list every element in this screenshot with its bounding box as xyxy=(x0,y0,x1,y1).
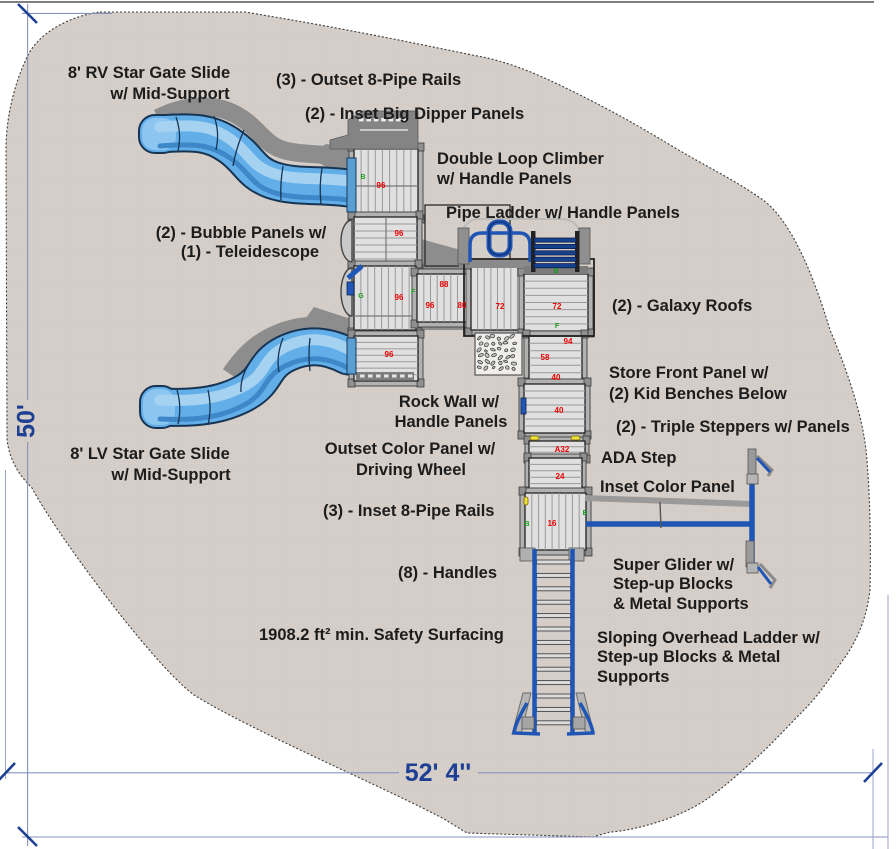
svg-text:1908.2 ft² min. Safety Surfaci: 1908.2 ft² min. Safety Surfacing xyxy=(259,626,504,644)
svg-text:w/ Mid-Support: w/ Mid-Support xyxy=(110,466,231,484)
svg-text:ADA Step: ADA Step xyxy=(601,449,676,467)
svg-text:Outset Color Panel w/: Outset Color Panel w/ xyxy=(325,440,496,458)
svg-text:Handle Panels: Handle Panels xyxy=(395,413,508,431)
svg-text:Rock Wall w/: Rock Wall w/ xyxy=(399,393,500,411)
svg-text:96: 96 xyxy=(395,293,404,302)
svg-text:A32: A32 xyxy=(555,445,570,454)
svg-text:24: 24 xyxy=(556,472,565,481)
svg-text:Store Front Panel w/: Store Front Panel w/ xyxy=(609,364,769,382)
svg-text:(2) Kid Benches Below: (2) Kid Benches Below xyxy=(609,385,787,403)
svg-text:(3) - Outset 8-Pipe Rails: (3) - Outset 8-Pipe Rails xyxy=(276,71,461,89)
svg-text:72: 72 xyxy=(553,302,562,311)
svg-text:(1) - Teleidescope: (1) - Teleidescope xyxy=(181,243,319,261)
svg-text:w/ Handle Panels: w/ Handle Panels xyxy=(436,170,572,188)
svg-text:(3) - Inset 8-Pipe Rails: (3) - Inset 8-Pipe Rails xyxy=(323,502,494,520)
svg-text:96: 96 xyxy=(377,181,386,190)
svg-text:Super Glider w/: Super Glider w/ xyxy=(613,556,734,574)
svg-text:F: F xyxy=(555,323,560,330)
svg-text:Supports: Supports xyxy=(597,668,669,686)
svg-text:Driving Wheel: Driving Wheel xyxy=(356,461,466,479)
svg-text:(2) - Inset Big Dipper Panels: (2) - Inset Big Dipper Panels xyxy=(305,105,524,123)
svg-text:Step-up Blocks: Step-up Blocks xyxy=(613,575,733,593)
svg-text:G: G xyxy=(358,293,364,300)
svg-text:(8) - Handles: (8) - Handles xyxy=(398,564,497,582)
svg-text:40: 40 xyxy=(555,406,564,415)
svg-text:Pipe Ladder w/ Handle Panels: Pipe Ladder w/ Handle Panels xyxy=(446,204,680,222)
svg-text:E: E xyxy=(583,510,588,517)
svg-text:B: B xyxy=(553,268,558,275)
svg-text:88: 88 xyxy=(440,280,449,289)
svg-text:58: 58 xyxy=(541,353,550,362)
svg-text:(2) - Galaxy Roofs: (2) - Galaxy Roofs xyxy=(612,297,752,315)
svg-text:B: B xyxy=(360,174,365,181)
svg-text:96: 96 xyxy=(426,301,435,310)
svg-text:96: 96 xyxy=(385,350,394,359)
svg-text:72: 72 xyxy=(496,302,505,311)
svg-text:Sloping Overhead Ladder w/: Sloping Overhead Ladder w/ xyxy=(597,629,820,647)
svg-text:w/ Mid-Support: w/ Mid-Support xyxy=(109,85,230,103)
svg-text:52' 4'': 52' 4'' xyxy=(405,759,472,787)
svg-text:40: 40 xyxy=(552,373,561,382)
svg-text:96: 96 xyxy=(395,229,404,238)
svg-text:94: 94 xyxy=(564,337,573,346)
svg-text:8' RV Star Gate Slide: 8' RV Star Gate Slide xyxy=(68,64,230,82)
svg-text:F: F xyxy=(411,289,416,296)
svg-text:Step-up Blocks & Metal: Step-up Blocks & Metal xyxy=(597,648,780,666)
svg-text:50': 50' xyxy=(13,404,41,438)
svg-text:& Metal Supports: & Metal Supports xyxy=(613,595,749,613)
svg-text:80: 80 xyxy=(458,301,467,310)
svg-text:(2) - Triple Steppers w/ Panel: (2) - Triple Steppers w/ Panels xyxy=(616,418,850,436)
svg-text:B: B xyxy=(524,521,529,528)
svg-text:8' LV Star Gate Slide: 8' LV Star Gate Slide xyxy=(70,445,230,463)
svg-text:16: 16 xyxy=(548,519,557,528)
svg-text:Inset Color Panel: Inset Color Panel xyxy=(600,478,735,496)
svg-text:Double Loop Climber: Double Loop Climber xyxy=(437,150,604,168)
svg-text:(2) - Bubble Panels w/: (2) - Bubble Panels w/ xyxy=(156,224,327,242)
